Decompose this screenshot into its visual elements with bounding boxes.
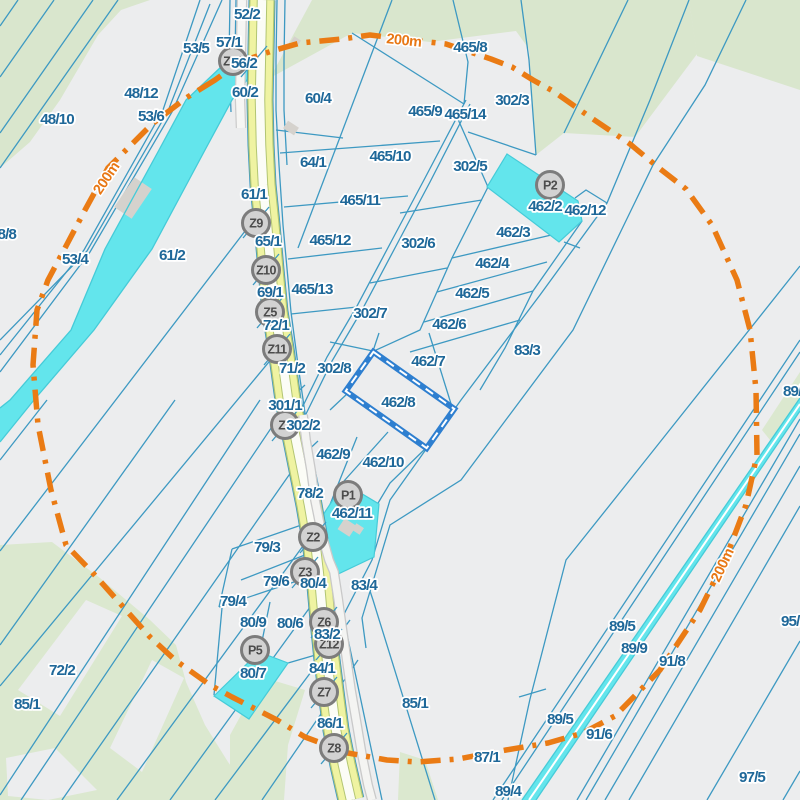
- svg-text:97/5: 97/5: [739, 769, 766, 786]
- svg-text:Z9: Z9: [249, 217, 263, 231]
- svg-text:462/12: 462/12: [564, 202, 606, 219]
- svg-text:48/8: 48/8: [0, 226, 16, 243]
- svg-text:80/4: 80/4: [300, 575, 327, 592]
- svg-text:79/3: 79/3: [254, 539, 280, 556]
- svg-text:465/9: 465/9: [408, 103, 442, 120]
- svg-text:465/10: 465/10: [369, 148, 411, 165]
- svg-text:462/10: 462/10: [362, 454, 404, 471]
- svg-text:60/2: 60/2: [232, 84, 258, 101]
- svg-text:87/1: 87/1: [474, 749, 501, 766]
- svg-text:72/2: 72/2: [49, 662, 75, 679]
- svg-text:91/8: 91/8: [659, 653, 685, 670]
- svg-text:89/6: 89/6: [783, 383, 800, 400]
- svg-text:56/2: 56/2: [231, 55, 257, 72]
- svg-text:Z8: Z8: [327, 742, 341, 756]
- svg-text:301/1: 301/1: [268, 397, 303, 414]
- svg-text:465/14: 465/14: [444, 106, 487, 123]
- svg-text:Z2: Z2: [306, 531, 320, 545]
- svg-text:462/7: 462/7: [411, 353, 445, 370]
- svg-text:89/5: 89/5: [609, 618, 636, 635]
- svg-text:80/9: 80/9: [240, 614, 266, 631]
- svg-text:89/4: 89/4: [495, 783, 522, 800]
- svg-text:79/6: 79/6: [263, 573, 289, 590]
- svg-text:91/6: 91/6: [586, 726, 612, 743]
- svg-text:P2: P2: [543, 179, 558, 193]
- svg-text:462/4: 462/4: [475, 255, 510, 272]
- svg-text:60/4: 60/4: [305, 90, 332, 107]
- svg-text:53/4: 53/4: [62, 251, 89, 268]
- svg-text:302/6: 302/6: [401, 235, 435, 252]
- svg-text:462/3: 462/3: [496, 224, 530, 241]
- svg-text:85/1: 85/1: [14, 696, 41, 713]
- svg-text:465/13: 465/13: [291, 281, 333, 298]
- svg-text:Z7: Z7: [317, 686, 331, 700]
- svg-text:48/12: 48/12: [124, 85, 158, 102]
- svg-text:P1: P1: [341, 489, 356, 503]
- svg-text:462/8: 462/8: [381, 394, 415, 411]
- svg-text:72/1: 72/1: [263, 317, 290, 334]
- svg-text:465/8: 465/8: [453, 39, 487, 56]
- svg-text:P5: P5: [248, 644, 263, 658]
- svg-text:89/9: 89/9: [621, 640, 647, 657]
- svg-text:71/2: 71/2: [279, 360, 305, 377]
- svg-text:64/1: 64/1: [300, 154, 327, 171]
- svg-text:83/4: 83/4: [351, 577, 378, 594]
- svg-text:57/1: 57/1: [216, 34, 243, 51]
- svg-text:61/1: 61/1: [241, 186, 268, 203]
- svg-text:302/8: 302/8: [317, 360, 351, 377]
- svg-text:462/6: 462/6: [432, 316, 466, 333]
- svg-text:52/2: 52/2: [234, 6, 260, 23]
- svg-text:78/2: 78/2: [297, 485, 323, 502]
- svg-text:80/7: 80/7: [240, 665, 266, 682]
- svg-text:95/7: 95/7: [781, 613, 800, 630]
- svg-text:Z11: Z11: [267, 343, 287, 357]
- svg-text:80/6: 80/6: [277, 615, 303, 632]
- svg-text:61/2: 61/2: [159, 247, 185, 264]
- svg-text:465/11: 465/11: [340, 192, 382, 209]
- svg-text:302/7: 302/7: [353, 305, 387, 322]
- svg-text:302/2: 302/2: [286, 417, 320, 434]
- svg-text:84/1: 84/1: [309, 660, 336, 677]
- svg-text:85/1: 85/1: [402, 695, 429, 712]
- svg-text:83/3: 83/3: [514, 342, 540, 359]
- svg-text:462/11: 462/11: [332, 505, 374, 522]
- svg-text:83/2: 83/2: [314, 626, 340, 643]
- svg-text:462/2: 462/2: [528, 198, 562, 215]
- svg-text:89/5: 89/5: [547, 711, 574, 728]
- svg-text:69/1: 69/1: [257, 284, 284, 301]
- svg-text:302/3: 302/3: [495, 92, 529, 109]
- svg-text:462/9: 462/9: [316, 446, 350, 463]
- svg-text:86/1: 86/1: [317, 715, 344, 732]
- svg-text:65/1: 65/1: [255, 233, 282, 250]
- svg-text:462/5: 462/5: [455, 285, 490, 302]
- svg-text:302/5: 302/5: [453, 158, 488, 175]
- svg-text:465/12: 465/12: [309, 232, 351, 249]
- svg-text:48/10: 48/10: [40, 111, 74, 128]
- svg-text:53/6: 53/6: [138, 108, 164, 125]
- svg-text:Z10: Z10: [256, 264, 276, 278]
- svg-text:79/4: 79/4: [220, 593, 247, 610]
- svg-text:53/5: 53/5: [183, 40, 210, 57]
